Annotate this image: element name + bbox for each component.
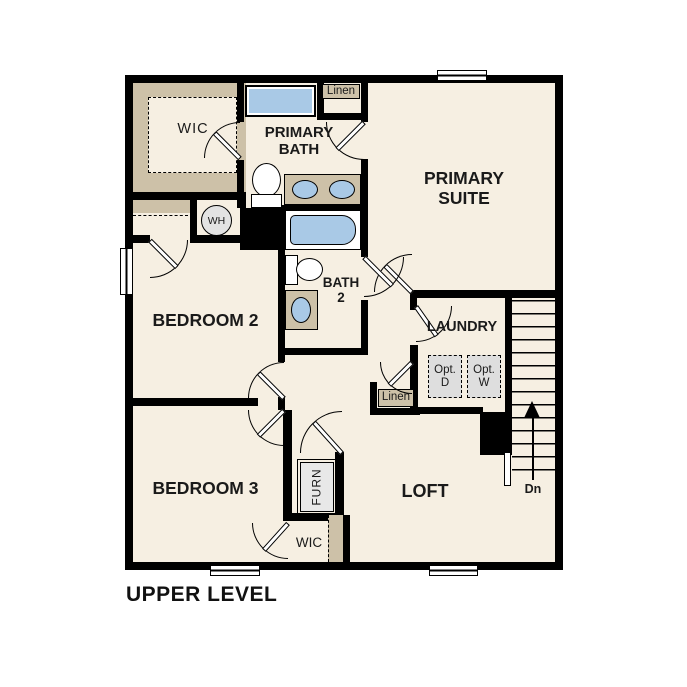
wall-furn-left — [283, 452, 292, 516]
furnace-unit: FURN — [300, 462, 334, 512]
page-title: UPPER LEVEL — [126, 583, 277, 607]
wall-linen-top-bottom — [317, 113, 368, 120]
primary-sink-right — [329, 180, 355, 199]
wall-laundry-stairs — [505, 293, 512, 415]
bath2-label: BATH 2 — [319, 275, 363, 305]
opt-washer-line2: W — [479, 377, 490, 389]
wall-wh-left — [190, 192, 197, 240]
bedroom3-window — [210, 565, 260, 576]
bath2-line2: 2 — [337, 290, 345, 305]
water-heater-label: WH — [208, 215, 226, 227]
bedroom2-closet-rod — [133, 215, 188, 216]
bath2-sink — [291, 297, 311, 323]
bedroom3-label: BEDROOM 3 — [133, 479, 278, 499]
primary-suite-label: PRIMARY SUITE — [403, 169, 525, 208]
laundry-label: LAUNDRY — [419, 319, 505, 335]
primary-suite-line2: SUITE — [438, 188, 490, 208]
wall-bedroom2-right — [278, 205, 285, 362]
bath2-line1: BATH — [323, 275, 360, 290]
chase-stairs — [480, 412, 512, 455]
opt-washer-line1: Opt. — [473, 364, 495, 376]
wall-chase-filler — [237, 200, 246, 208]
wall-bedroom3-right — [283, 410, 292, 452]
wall-laundry-bottom — [417, 407, 483, 414]
primary-bath-label: PRIMARY BATH — [243, 125, 355, 159]
wall-bath2-bottom — [283, 348, 368, 355]
primary-bath-line2: BATH — [279, 141, 320, 158]
bath2-tub — [290, 215, 356, 245]
wall-wic-right-lower — [237, 160, 244, 192]
linen-top-closet: Linen — [322, 84, 360, 99]
wall-linen-hall-bottom — [370, 408, 420, 415]
wall-suite-bottom — [412, 290, 555, 298]
primary-suite-window — [437, 70, 487, 81]
primary-toilet-bowl — [252, 163, 281, 197]
wall-bath-suite-2 — [361, 159, 368, 257]
linen-top-label: Linen — [327, 85, 355, 97]
primary-sink-left — [292, 180, 318, 199]
stairs-rail — [504, 452, 511, 486]
wall-bath-suite-3 — [361, 300, 368, 355]
optional-washer: Opt. W — [467, 355, 501, 398]
wall-wh-bottom — [190, 235, 246, 243]
loft-label: LOFT — [383, 481, 467, 501]
loft-window — [429, 565, 478, 576]
stairs-down-label: Dn — [511, 482, 555, 496]
opt-dryer-line1: Opt. — [434, 364, 456, 376]
wall-bedroom2-bedroom3 — [133, 398, 258, 406]
shower — [245, 85, 316, 117]
stairs-arrow-shaft — [532, 417, 534, 480]
opt-dryer-line2: D — [441, 377, 449, 389]
furnace-label: FURN — [310, 468, 324, 505]
primary-toilet-tank — [251, 194, 282, 208]
bedroom2-label: BEDROOM 2 — [133, 311, 278, 331]
bedroom2-closet-shelf — [133, 200, 190, 213]
wall-furn-right — [335, 452, 344, 516]
wic-bottom-label: WIC — [283, 535, 335, 550]
stairs-arrow-head — [524, 401, 540, 418]
water-heater: WH — [201, 205, 232, 236]
optional-dryer: Opt. D — [428, 355, 462, 398]
primary-bath-line1: PRIMARY — [265, 124, 334, 141]
wall-wic-right-upper — [237, 83, 244, 122]
floor-plan-canvas: WH Linen Linen Opt. D Opt. W FURN — [0, 0, 687, 687]
wall-wic-bottom-right — [343, 515, 350, 562]
primary-suite-line1: PRIMARY — [424, 168, 504, 188]
floor-plan: WH Linen Linen Opt. D Opt. W FURN — [125, 75, 563, 570]
bedroom2-window — [120, 248, 133, 295]
wic-top-label: WIC — [158, 121, 228, 137]
